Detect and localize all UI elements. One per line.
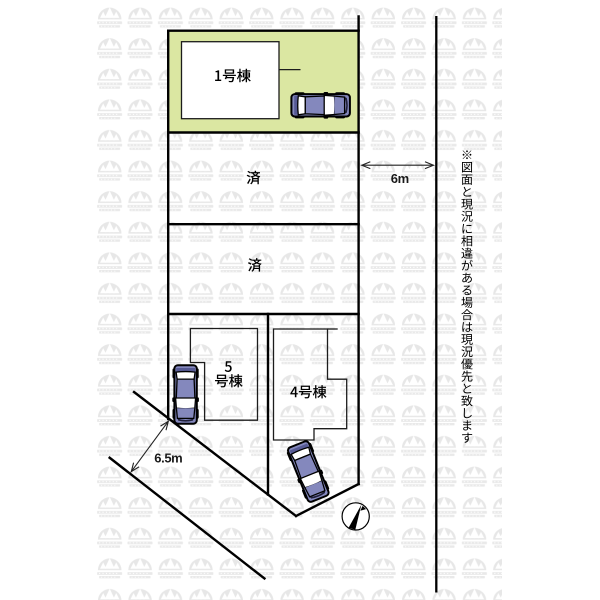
svg-text:6.5m: 6.5m xyxy=(154,450,182,465)
svg-text:6m: 6m xyxy=(391,171,409,186)
